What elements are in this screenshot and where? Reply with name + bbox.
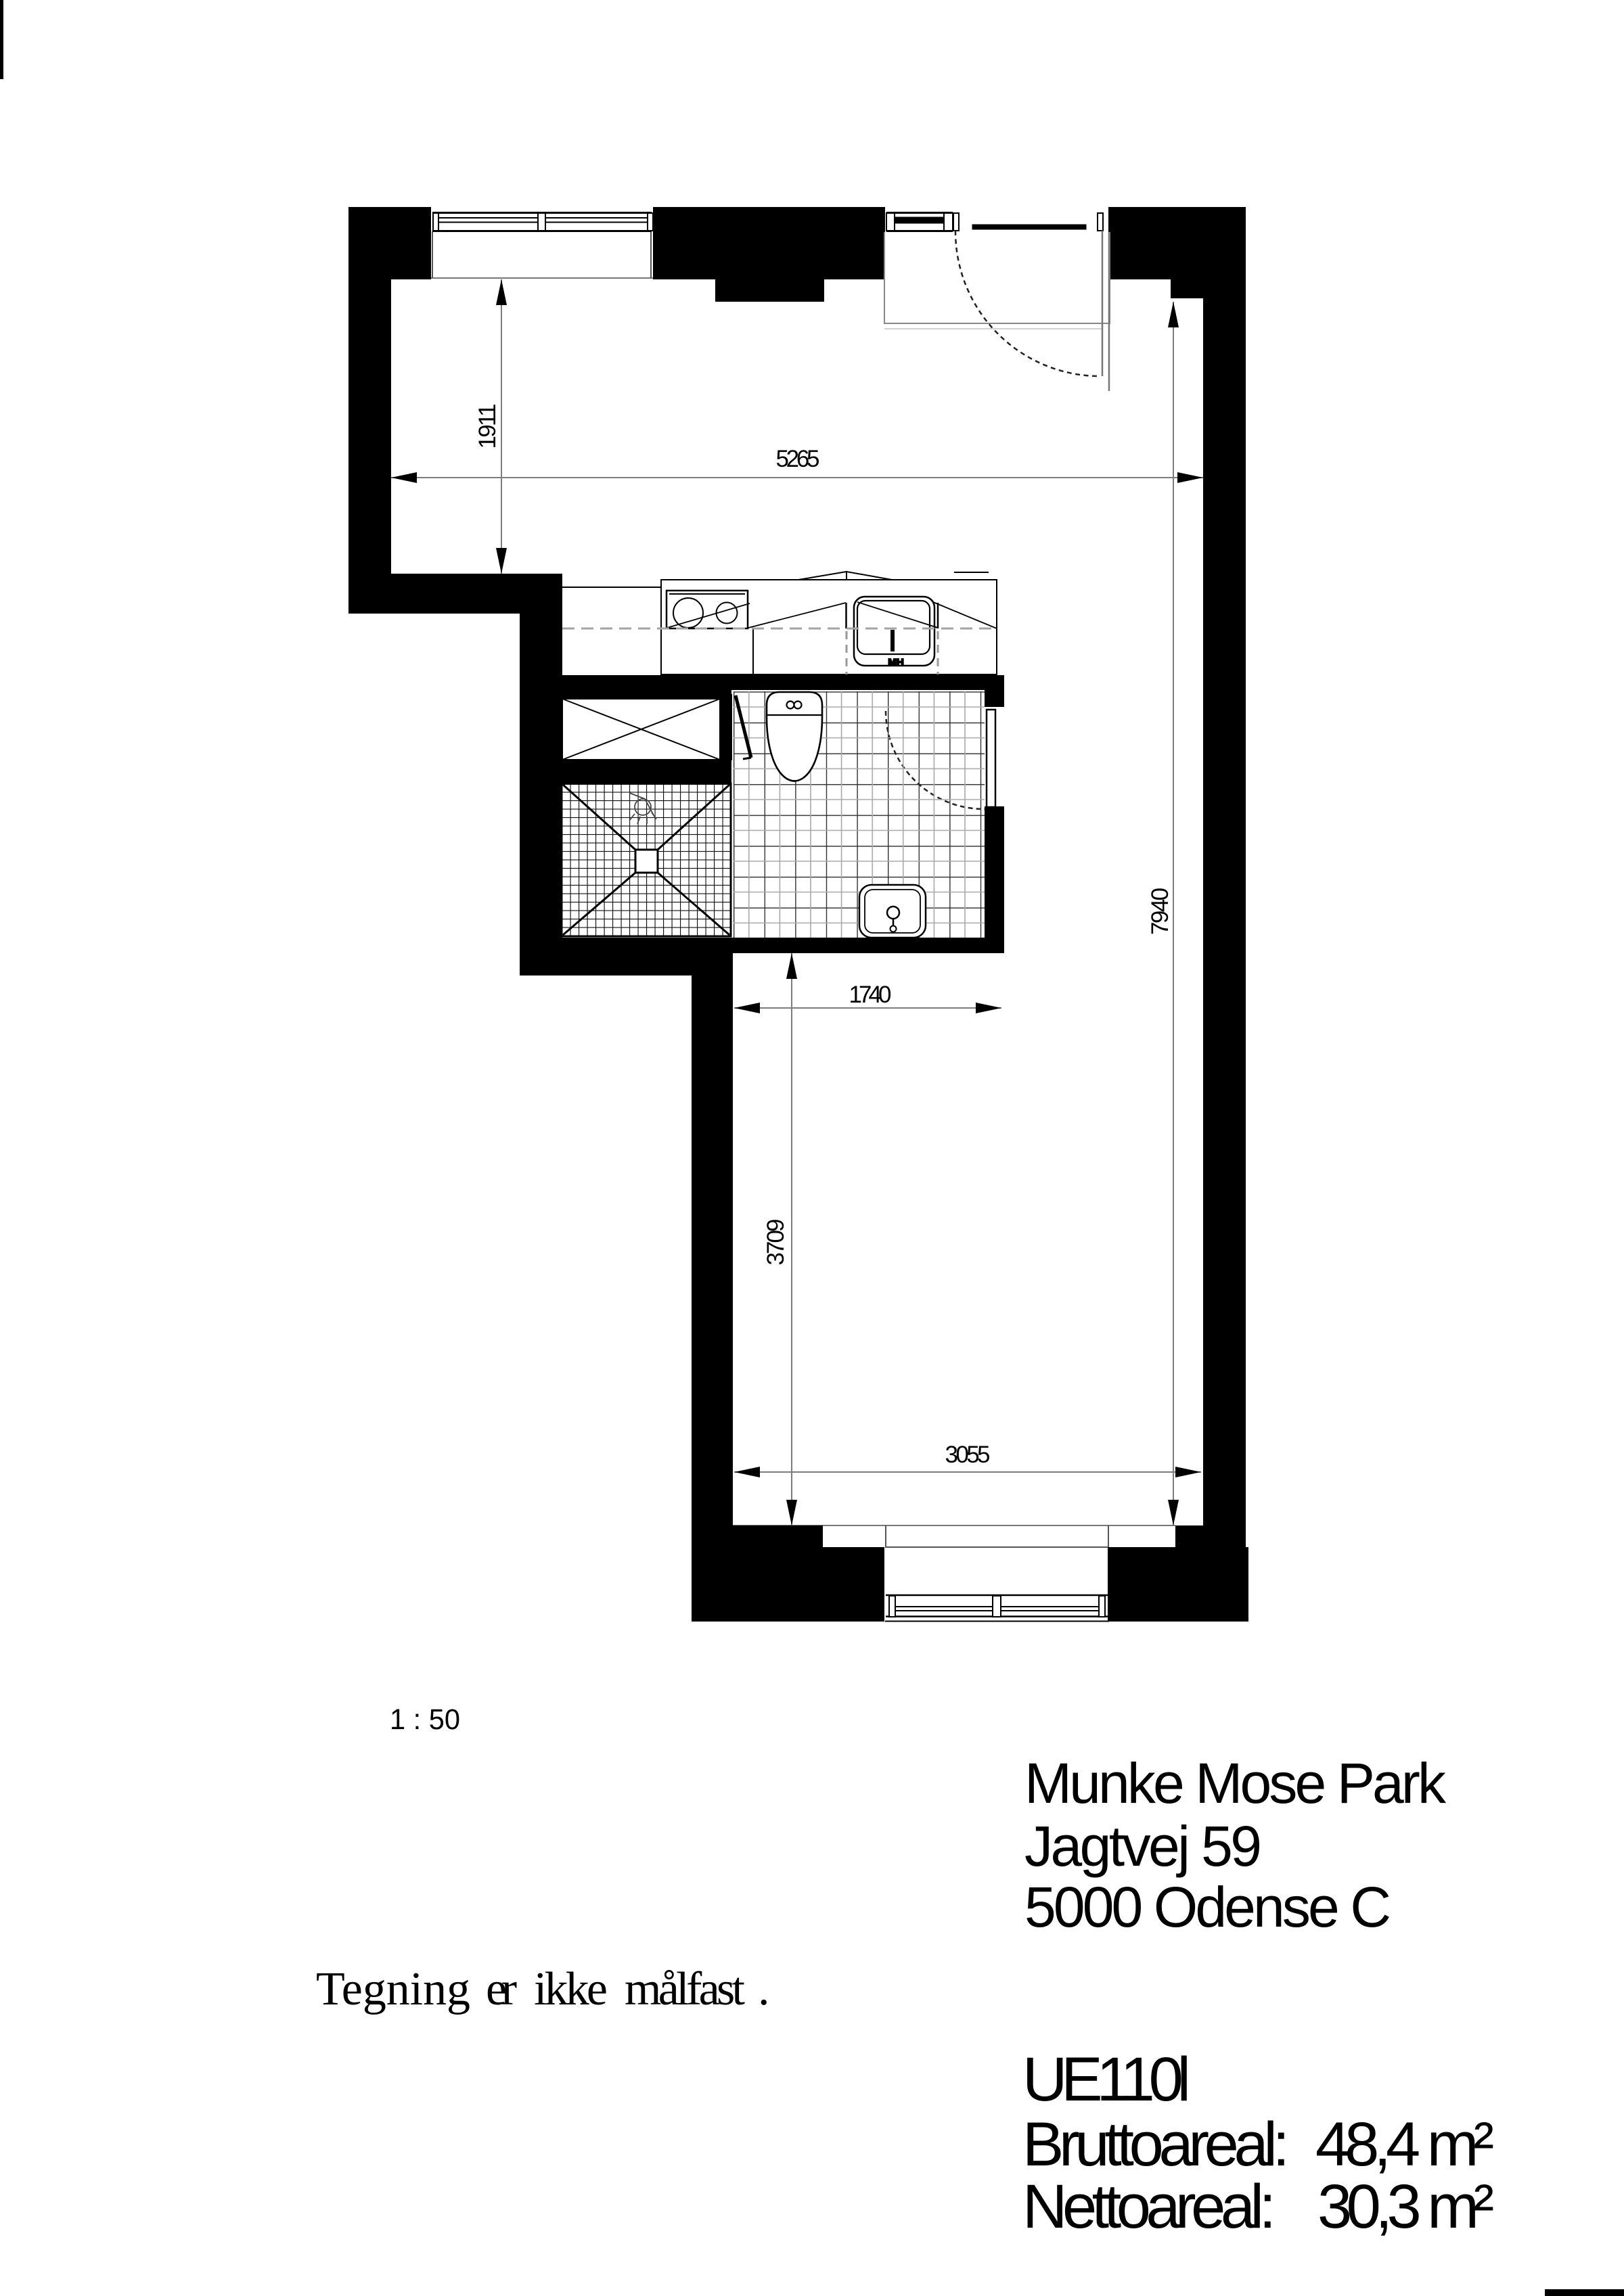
svg-text:målfast: målfast (625, 1963, 746, 2015)
svg-text:Munke Mose Park: Munke Mose Park (1024, 1751, 1447, 1815)
svg-text:3055: 3055 (945, 1442, 991, 1468)
svg-text:5000 Odense C: 5000 Odense C (1024, 1875, 1391, 1939)
svg-text:1740: 1740 (849, 982, 892, 1008)
svg-text:UE110l: UE110l (1022, 2045, 1191, 2114)
svg-text:.: . (758, 1963, 770, 2015)
svg-text:Nettoareal:: Nettoareal: (1022, 2172, 1276, 2241)
svg-text:48,4 m²: 48,4 m² (1315, 2110, 1494, 2179)
svg-text:ikke: ikke (534, 1963, 608, 2015)
svg-text:MH: MH (888, 657, 903, 668)
svg-text:Tegning: Tegning (316, 1963, 470, 2015)
svg-text:er: er (486, 1963, 517, 2015)
svg-text:7940: 7940 (1147, 888, 1173, 935)
svg-text:Jagtvej 59: Jagtvej 59 (1024, 1814, 1262, 1878)
svg-text:3709: 3709 (763, 1219, 789, 1266)
svg-text:30,3 m²: 30,3 m² (1317, 2172, 1494, 2241)
svg-text:5265: 5265 (776, 446, 820, 472)
svg-text:Bruttoareal:: Bruttoareal: (1022, 2110, 1290, 2179)
svg-text:1911: 1911 (474, 404, 501, 449)
svg-text:1 : 50: 1 : 50 (390, 1703, 460, 1736)
